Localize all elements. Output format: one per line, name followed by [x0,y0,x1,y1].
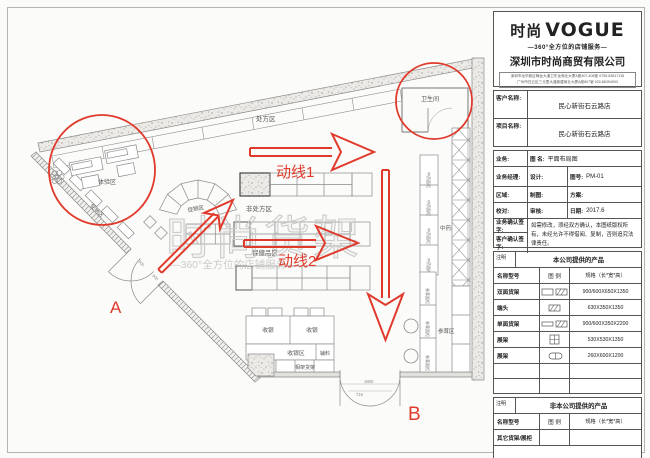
product-spec [570,430,641,445]
cell-zhitu: 制图: [528,187,568,203]
client-row: 客户名称: 民心新街石云路店 [494,91,641,119]
wc-room [402,88,468,132]
client-label: 客户名称: [494,91,528,118]
label-experience-area: 体验区 [98,178,116,186]
other-products-title: 非本公司提供的产品 [516,398,641,413]
other-products-header: 注明 非本公司提供的产品 [494,398,641,414]
display-rack2-legend-icon [541,351,569,361]
address-box: 深圳市龙华新区梅龙大道卫东龙商业大厦A座407-408室 0755-836171… [499,72,636,88]
product-row: 双面货架 900/600X650X1350 [494,284,641,300]
double-sided-shelf-legend-icon [541,287,569,297]
prescription-cabinets [52,89,402,168]
flow-arrow-vertical [368,170,403,340]
cell-quyu: 区域: [494,187,528,203]
lattice-cabinets [452,128,470,286]
svg-text:中药面柜: 中药面柜 [426,172,432,188]
product-spec: 530X530X1350 [570,332,641,347]
svg-text:参茸面柜: 参茸面柜 [425,288,431,304]
label-accessories: 辅料 [320,350,330,357]
cell-shenhe: 审核: [528,203,568,219]
product-row: 端头 630X350X1350 [494,300,641,316]
dim-door-a-leaf-1: 900 [137,259,146,268]
label-door-b: B [408,404,421,425]
address-line-2: 广州市白云区三元里大道新建商业大厦A座807室 020-86394093 [502,80,633,86]
logo-tagline: —360°全方位的店铺服务— [494,42,641,51]
cell-kehu-qianzi: 客户确认签字: [494,233,528,253]
endcap-legend-icon [541,303,569,313]
cell-tuhao: 图号: PM-01 [568,167,641,187]
svg-text:参茸面柜: 参茸面柜 [425,321,431,337]
products-col-header: 名称型号 图 例 规格（长*宽*高） [494,414,641,430]
empty-area [494,446,641,458]
cashier-counter [246,308,334,376]
product-row: 展架 260X600X1200 [494,348,641,364]
logo-box: 时尚VOGUE —360°全方位的店铺服务— 深圳市时尚商贸有限公司 深圳市龙华… [493,11,642,87]
logo: 时尚VOGUE [494,19,641,41]
cell-riqi: 日期: 2017.6 [568,203,641,219]
stool-circles [404,319,418,363]
note-label: 注明 [494,252,516,267]
product-name: 单面货架 [494,316,540,331]
company-products-table: 注明 本公司提供的产品 名称型号 图 例 规格（长*宽*高） 双面货架 900/… [493,251,642,394]
door-b [340,370,400,406]
tuming-label: 图 名: [530,155,545,163]
note-label: 注明 [494,398,516,413]
client-value: 民心新街石云路店 [528,91,641,118]
dim-door-b-width: 1800 [364,379,374,384]
watermark: 时尚货架 —360°全方位的店铺服务— [166,212,362,271]
products-col-header: 名称型号 图 例 规格（长*宽*高） [494,268,641,284]
copyright-note: 如需修改，须经双方确认，本图纸版权所有，未经允许不得借阅、复制，否则追究法律责任… [528,219,641,253]
client-info-box: 客户名称: 民心新街石云路店 项目名称: 民心新街石云路店 [493,90,642,147]
cell-sheji: 设计: [528,167,568,187]
right-wall [472,58,484,380]
riqi-value: 2017.6 [586,208,604,214]
product-name: 双面货架 [494,284,540,299]
product-row: 展架 530X530X1350 [494,332,641,348]
label-cashier-area: 收银区 [287,349,305,357]
legend-cell [540,332,570,347]
logo-en: VOGUE [545,19,625,41]
cell-yewu-qianzi: 业务确认签字: [494,219,528,233]
project-label: 项目名称: [494,119,528,146]
legend-cell [540,430,570,445]
left-wall-lower [158,281,260,382]
tuhao-label: 图号: [570,173,583,181]
dim-door-a-leaf-2: 900 [151,273,160,282]
display-rack-legend-icon [541,334,569,345]
other-products-table: 注明 非本公司提供的产品 名称型号 图 例 规格（长*宽*高） 其它货架/展柜 [493,397,642,458]
col-name: 名称型号 [494,268,540,283]
floor-plan: 处方区 卫生间 中药面柜 中药面柜 中药面柜 中药面柜 中药区 [0,0,492,458]
col-legend: 图 例 [540,268,570,283]
legend-cell [540,284,570,299]
address-line-1: 深圳市龙华新区梅龙大道卫东龙商业大厦A座407-408室 0755-836171… [502,74,633,80]
product-name: 展架 [494,348,540,363]
bottom-wall-right [400,372,472,377]
project-value: 民心新街石云路店 [528,119,641,146]
product-name: 端头 [494,300,540,315]
label-toilet: 卫生间 [421,95,439,103]
drawing-sheet: 处方区 卫生间 中药面柜 中药面柜 中药面柜 中药面柜 中药区 [0,0,650,458]
label-cashier-2: 收银 [306,326,318,334]
riqi-label: 日期: [570,207,583,215]
ginseng-cabinet-labels: 参茸面柜 参茸面柜 参茸面柜 [425,288,431,371]
product-row: 单面货架 900/600X350X2200 [494,316,641,332]
top-wall [38,58,478,152]
tuhao-value: PM-01 [586,174,604,180]
product-spec: 630X350X1350 [570,300,641,315]
product-name: 展架 [494,332,540,347]
company-name: 深圳市时尚商贸有限公司 [494,54,641,69]
company-products-title: 本公司提供的产品 [516,252,641,267]
col-name: 名称型号 [494,414,540,429]
svg-text:中药面柜: 中药面柜 [426,228,432,244]
product-spec: 900/600X350X2200 [570,316,641,331]
cell-yewu: 业务: [494,151,528,167]
product-name: 其它货架/展柜 [494,430,540,445]
right-wall-cabinets [452,286,470,372]
label-ginseng-area: 参茸区 [438,327,455,335]
cell-jingli: 业务经理: [494,167,528,187]
title-block-grid: 业务: 图 名: 平面布局图 业务经理: 设计: 图号: PM-01 区域: 制… [493,150,642,248]
svg-text:中药面柜: 中药面柜 [426,200,432,216]
product-row-empty [494,364,641,379]
col-spec: 规格（长*宽*高） [570,268,641,283]
svg-text:参茸面柜: 参茸面柜 [425,355,431,371]
svg-text:中药面柜: 中药面柜 [426,258,432,274]
project-row: 项目名称: 民心新街石云路店 [494,119,641,146]
legend-cell [540,316,570,331]
col-spec: 规格（长*宽*高） [570,414,641,429]
logo-cn: 时尚 [510,23,542,40]
label-cashier-1: 收银 [262,326,274,334]
label-bottom-shelf: 相架货架 [295,364,315,371]
label-flow1: 动线1 [276,164,314,181]
legend-cell [540,348,570,363]
tuming-value: 平面布局图 [548,154,578,163]
company-products-header: 注明 本公司提供的产品 [494,252,641,268]
col-legend: 图 例 [540,414,570,429]
product-spec: 900/600X650X1350 [570,284,641,299]
label-flow2: 动线2 [278,253,316,270]
single-sided-shelf-legend-icon [541,319,569,329]
product-spec: 260X600X1200 [570,348,641,363]
product-row-empty [494,379,641,393]
cell-tuming: 图 名: 平面布局图 [528,151,641,167]
cell-fangan: 方案: [568,187,641,203]
product-row: 其它货架/展柜 [494,430,641,446]
label-prescription-area: 处方区 [256,114,276,123]
label-door-a: A [110,298,122,317]
legend-cell [540,300,570,315]
dim-door-b-depth: 715 [356,392,364,397]
title-panel: 时尚VOGUE —360°全方位的店铺服务— 深圳市时尚商贸有限公司 深圳市龙华… [493,11,642,447]
